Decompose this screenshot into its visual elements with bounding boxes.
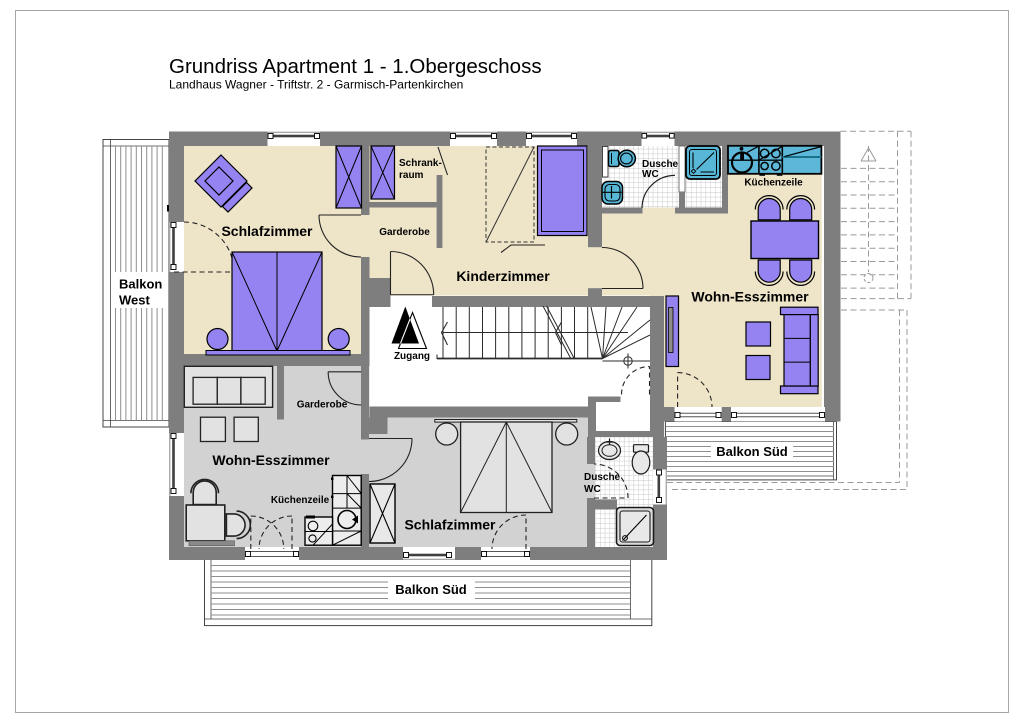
svg-text:Balkon Süd: Balkon Süd [395, 582, 467, 597]
svg-text:Balkon Süd: Balkon Süd [716, 444, 788, 459]
svg-text:West: West [119, 293, 150, 308]
svg-text:Balkon: Balkon [119, 277, 162, 292]
svg-text:Küchenzeile: Küchenzeile [271, 495, 330, 506]
svg-text:Küchenzeile: Küchenzeile [744, 178, 803, 189]
svg-text:Wohn-Esszimmer: Wohn-Esszimmer [691, 289, 809, 305]
svg-text:Wohn-Esszimmer: Wohn-Esszimmer [212, 452, 330, 468]
svg-text:raum: raum [399, 170, 424, 181]
svg-text:Schlafzimmer: Schlafzimmer [404, 517, 496, 533]
svg-text:Garderobe: Garderobe [297, 400, 348, 411]
svg-text:WC: WC [584, 484, 601, 495]
svg-text:Grundriss Apartment 1 - 1.Ober: Grundriss Apartment 1 - 1.Obergeschoss [169, 55, 542, 78]
svg-text:Landhaus Wagner - Triftstr. 2: Landhaus Wagner - Triftstr. 2 - Garmisch… [169, 78, 463, 92]
svg-text:Dusche: Dusche [584, 472, 621, 483]
svg-text:Schrank-: Schrank- [399, 158, 442, 169]
svg-text:Kinderzimmer: Kinderzimmer [456, 268, 550, 284]
svg-text:WC: WC [642, 169, 659, 180]
svg-text:Garderobe: Garderobe [379, 227, 430, 238]
svg-text:Schlafzimmer: Schlafzimmer [221, 223, 313, 239]
svg-text:Zugang: Zugang [394, 351, 430, 362]
